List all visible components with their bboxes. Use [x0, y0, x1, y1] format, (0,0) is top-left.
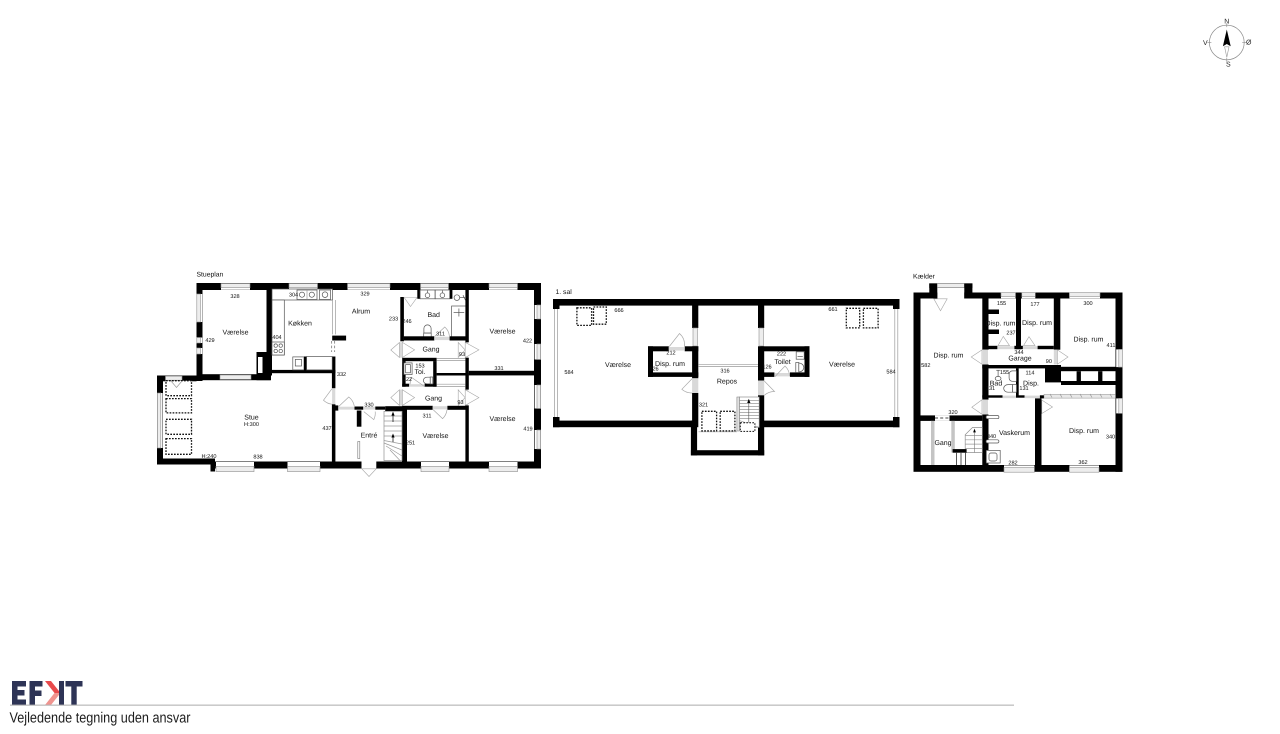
svg-text:340: 340	[1106, 434, 1115, 440]
svg-text:131: 131	[1019, 386, 1028, 392]
svg-text:838: 838	[253, 455, 262, 461]
svg-text:233: 233	[389, 317, 398, 323]
svg-text:212: 212	[666, 351, 675, 357]
svg-text:404: 404	[272, 335, 281, 341]
svg-text:Værelse: Værelse	[489, 328, 515, 336]
svg-text:411: 411	[1107, 343, 1116, 349]
svg-text:222: 222	[777, 352, 786, 358]
svg-text:Repos: Repos	[717, 379, 738, 386]
svg-text:316: 316	[720, 368, 729, 374]
svg-text:332: 332	[337, 372, 346, 378]
svg-text:122: 122	[403, 377, 412, 383]
svg-text:320: 320	[948, 410, 957, 416]
svg-text:582: 582	[921, 363, 930, 369]
svg-text:1. sal: 1. sal	[556, 289, 573, 296]
svg-text:155: 155	[997, 301, 1006, 307]
svg-text:Toilet: Toilet	[774, 358, 790, 366]
svg-text:114: 114	[1026, 371, 1035, 377]
svg-text:321: 321	[699, 402, 708, 408]
svg-text:362: 362	[1078, 460, 1087, 466]
svg-text:Værelse: Værelse	[422, 432, 448, 440]
svg-text:340: 340	[987, 434, 996, 440]
svg-text:131: 131	[986, 386, 995, 392]
svg-text:Gang: Gang	[934, 440, 951, 447]
svg-text:Stue: Stue	[244, 415, 259, 422]
svg-text:Disp. rum: Disp. rum	[934, 352, 964, 360]
svg-text:304: 304	[289, 292, 298, 298]
svg-text:V: V	[1203, 40, 1208, 47]
svg-text:Vejledende tegning uden ansvar: Vejledende tegning uden ansvar	[10, 711, 191, 727]
svg-text:282: 282	[1008, 460, 1017, 466]
svg-text:Ø: Ø	[1246, 39, 1252, 47]
svg-text:Disp. rum: Disp. rum	[1074, 335, 1104, 343]
svg-text:Disp. rum: Disp. rum	[655, 360, 685, 368]
svg-text:331: 331	[494, 366, 503, 372]
svg-text:Kælder: Kælder	[913, 274, 936, 281]
svg-text:90: 90	[1046, 359, 1052, 365]
svg-text:155: 155	[1000, 370, 1009, 376]
svg-text:Køkken: Køkken	[288, 320, 312, 328]
svg-text:Gang: Gang	[425, 396, 442, 403]
svg-text:Alrum: Alrum	[352, 308, 370, 316]
svg-text:666: 666	[614, 308, 623, 314]
svg-text:237: 237	[1006, 330, 1015, 336]
svg-text:Vaskerum: Vaskerum	[999, 429, 1030, 437]
svg-text:311: 311	[423, 413, 432, 419]
svg-text:311: 311	[436, 332, 445, 338]
svg-text:Disp. rum: Disp. rum	[986, 319, 1016, 327]
svg-text:126: 126	[762, 364, 771, 370]
svg-text:H:300: H:300	[244, 422, 259, 428]
svg-text:Toi.: Toi.	[415, 368, 426, 376]
svg-text:Bad: Bad	[427, 311, 440, 319]
svg-text:Disp. rum: Disp. rum	[1022, 319, 1052, 327]
svg-text:S: S	[1226, 62, 1231, 69]
svg-text:Værelse: Værelse	[489, 415, 515, 423]
svg-text:437: 437	[322, 426, 331, 432]
svg-text:419: 419	[523, 426, 532, 432]
svg-text:93: 93	[459, 352, 465, 358]
svg-text:H:240: H:240	[202, 454, 217, 460]
svg-text:251: 251	[406, 440, 415, 446]
svg-text:328: 328	[230, 294, 239, 300]
svg-text:661: 661	[828, 307, 837, 313]
svg-text:300: 300	[1083, 301, 1092, 307]
svg-text:422: 422	[523, 338, 532, 344]
svg-text:Entré: Entré	[361, 432, 378, 440]
svg-text:584: 584	[886, 369, 895, 375]
svg-text:Værelse: Værelse	[222, 329, 248, 337]
svg-text:177: 177	[1030, 302, 1039, 308]
svg-text:246: 246	[402, 319, 411, 325]
svg-text:93: 93	[457, 400, 463, 406]
svg-text:584: 584	[564, 370, 573, 376]
svg-text:Værelse: Værelse	[829, 361, 855, 369]
svg-text:330: 330	[364, 402, 373, 408]
svg-text:329: 329	[360, 291, 369, 297]
svg-text:Garage: Garage	[1008, 355, 1031, 362]
svg-text:126: 126	[649, 367, 658, 373]
svg-text:N: N	[1224, 19, 1229, 26]
svg-text:429: 429	[205, 338, 214, 344]
svg-text:Værelse: Værelse	[605, 361, 631, 369]
svg-text:Gang: Gang	[422, 347, 439, 354]
svg-text:Stueplan: Stueplan	[197, 272, 224, 279]
svg-text:Disp. rum: Disp. rum	[1069, 427, 1099, 435]
